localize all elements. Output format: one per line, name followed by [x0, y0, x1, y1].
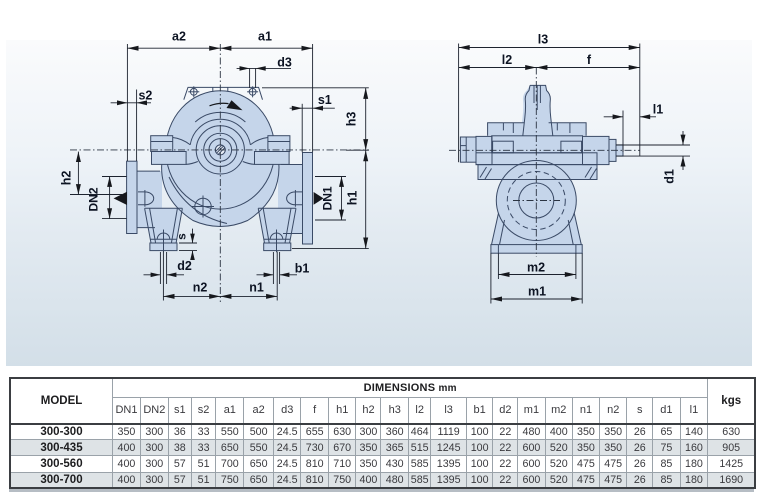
svg-text:n1: n1 [249, 281, 264, 295]
svg-text:DN2: DN2 [87, 187, 101, 211]
svg-text:m1: m1 [528, 285, 546, 299]
svg-text:d1: d1 [663, 169, 677, 184]
svg-text:l2: l2 [502, 53, 512, 67]
svg-text:f: f [587, 53, 592, 67]
svg-text:h2: h2 [60, 171, 74, 186]
svg-text:s: s [175, 233, 189, 240]
svg-text:d3: d3 [277, 56, 292, 70]
svg-text:b1: b1 [295, 262, 310, 276]
svg-text:s2: s2 [138, 88, 152, 102]
svg-text:a2: a2 [172, 30, 186, 44]
svg-text:a1: a1 [258, 30, 272, 44]
svg-text:n2: n2 [193, 281, 208, 295]
svg-text:m2: m2 [527, 261, 545, 275]
svg-text:DN1: DN1 [321, 186, 335, 210]
svg-text:h1: h1 [346, 191, 360, 206]
svg-text:s1: s1 [318, 93, 332, 107]
svg-text:l1: l1 [653, 103, 663, 117]
svg-text:l3: l3 [538, 33, 548, 47]
svg-text:h3: h3 [345, 112, 359, 127]
svg-text:d2: d2 [177, 259, 192, 273]
